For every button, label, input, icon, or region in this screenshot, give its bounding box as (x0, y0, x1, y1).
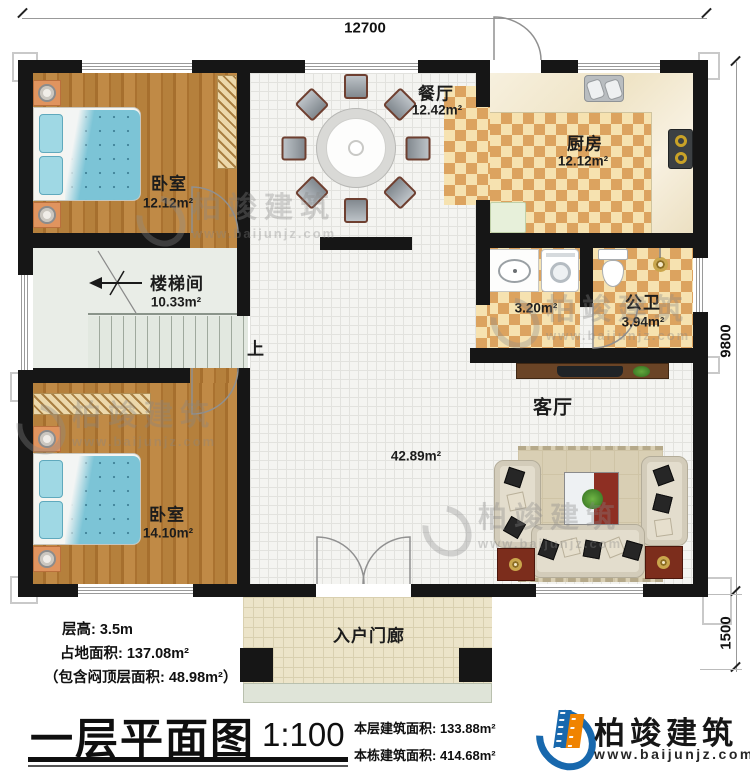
wash-entry-opening (476, 305, 490, 348)
right-dimension-line (736, 62, 737, 672)
dimension-right-porch-label: 1500 (718, 616, 735, 649)
wall-kitchen-south (476, 233, 708, 248)
dimension-top-label: 12700 (344, 20, 386, 37)
wall-kitchen-west (476, 60, 490, 107)
cushion (652, 493, 673, 514)
wash-area-label: 3.20m² (515, 301, 558, 316)
window (536, 584, 643, 597)
window (693, 258, 708, 312)
bedroom1-label: 卧室 (151, 170, 187, 195)
faucet-icon (513, 269, 517, 273)
pillow (39, 501, 63, 539)
land-area-note: 占地面积: 137.08m² (60, 642, 189, 663)
nightstand (33, 202, 61, 228)
stairwell-label: 楼梯间 (150, 270, 204, 295)
wardrobe (33, 393, 151, 415)
porch-column (240, 648, 273, 682)
building-total-area: 本栋建筑面积: 414.68m² (354, 745, 496, 764)
burner-icon (675, 152, 687, 164)
blanket (65, 110, 99, 200)
drawing-scale: 1:100 (262, 716, 345, 754)
bedroom1-door-opening (190, 233, 237, 248)
bedroom1-area: 12.12m² (143, 196, 193, 211)
nightstand (33, 426, 61, 452)
dining-chair (282, 137, 307, 161)
lazy-susan (348, 140, 364, 156)
floor-built-area: 本层建筑面积: 133.88m² (354, 718, 496, 737)
end-table (645, 546, 683, 579)
wardrobe (217, 75, 237, 169)
lamp-icon (38, 430, 56, 448)
washer-panel (546, 253, 575, 257)
porch-step (243, 683, 492, 703)
sink-basin (603, 78, 623, 101)
cushion (538, 539, 560, 561)
ornament-icon (509, 558, 522, 571)
wall-bath-south (470, 348, 708, 363)
dining-label: 餐厅 (418, 80, 454, 105)
sofa-main (531, 524, 645, 578)
title-underline (28, 757, 348, 762)
wall-interior-vertical (237, 383, 250, 584)
nightstand (33, 80, 61, 106)
cushion (503, 516, 526, 539)
toilet (597, 249, 629, 289)
wash-counter (489, 249, 539, 292)
dimension-tick (701, 8, 712, 19)
dining-chair (344, 198, 368, 223)
pillow (39, 156, 63, 195)
lamp-icon (38, 84, 56, 102)
toilet-label: 公卫 (625, 289, 661, 314)
dimension-extension-line (708, 594, 742, 595)
bedroom2-area: 14.10m² (143, 526, 193, 541)
kitchen-area: 12.12m² (558, 154, 608, 169)
cushion (560, 537, 581, 558)
stair-treads (88, 316, 248, 368)
dining-area: 12.42m² (412, 103, 462, 118)
window (578, 60, 660, 73)
toilet-area: 3.94m² (622, 315, 665, 330)
toilet-tank (598, 249, 628, 260)
burner-icon (675, 135, 687, 147)
title-underline-thin (28, 765, 348, 767)
kitchen-label: 厨房 (567, 130, 603, 155)
wall-kitchen-west (476, 200, 490, 305)
plant-icon (582, 489, 603, 509)
sink-basin (585, 78, 605, 101)
stairwell-area: 10.33m² (151, 295, 201, 310)
tv-icon (557, 366, 623, 377)
cushion (653, 465, 675, 487)
lamp-icon (38, 550, 56, 568)
lamp-icon (38, 206, 56, 224)
bed (33, 107, 141, 201)
window (305, 60, 418, 73)
washing-machine (541, 249, 579, 292)
dimension-tick (17, 8, 28, 19)
wall-wash-toilet (580, 248, 593, 307)
fridge (490, 202, 526, 233)
bed (33, 453, 141, 545)
dimension-extension-line (700, 669, 742, 670)
ornament-icon (657, 556, 670, 569)
wall-right (693, 60, 708, 597)
stairs-up-label: 上 (247, 335, 265, 360)
cushion (654, 518, 673, 537)
window (78, 584, 193, 597)
coffee-table (564, 472, 619, 525)
wall-dining-stub (320, 237, 412, 250)
brand-logo: 柏竣建筑 www.baijunjz.com (536, 700, 748, 772)
plant-icon (633, 366, 650, 377)
porch-label: 入户门廊 (333, 622, 405, 647)
kitchen-door-opening (490, 60, 541, 73)
pillow (39, 114, 63, 153)
front-door-opening (316, 584, 411, 597)
floor-height-note: 层高: 3.5m (62, 618, 133, 639)
cushion (504, 467, 525, 488)
dining-chair (344, 74, 368, 99)
dining-chair (406, 137, 431, 161)
wall-interior-vertical (237, 60, 250, 233)
cushion (583, 540, 603, 560)
toilet-bowl (602, 260, 624, 287)
kitchen-sink (584, 75, 624, 102)
tv-stand (516, 363, 669, 379)
bedroom2-door-opening (190, 368, 237, 383)
window (82, 60, 192, 73)
floor-plan: 12700 9800 1500 (0, 0, 750, 776)
stair-handrail (88, 313, 250, 315)
shower-head-icon (653, 257, 668, 272)
attic-area-note: （包含闷顶层面积: 48.98m²） (44, 666, 237, 687)
stove (668, 129, 693, 169)
washer-door-icon (550, 262, 571, 283)
nightstand (33, 546, 61, 572)
living-label: 客厅 (533, 393, 573, 420)
end-table (497, 548, 535, 581)
wall-interior-vertical (237, 248, 250, 316)
sofa-right (641, 456, 688, 546)
cushion (622, 540, 643, 561)
cushion (506, 491, 526, 511)
dining-table (316, 108, 396, 188)
porch-column (459, 648, 492, 682)
blanket (65, 456, 99, 544)
pillow (39, 460, 63, 498)
brand-url: www.baijunjz.com (594, 746, 750, 762)
bedroom2-label: 卧室 (149, 501, 185, 526)
living-area: 42.89m² (391, 449, 441, 464)
dimension-right-main-label: 9800 (718, 324, 735, 357)
window (18, 275, 33, 370)
